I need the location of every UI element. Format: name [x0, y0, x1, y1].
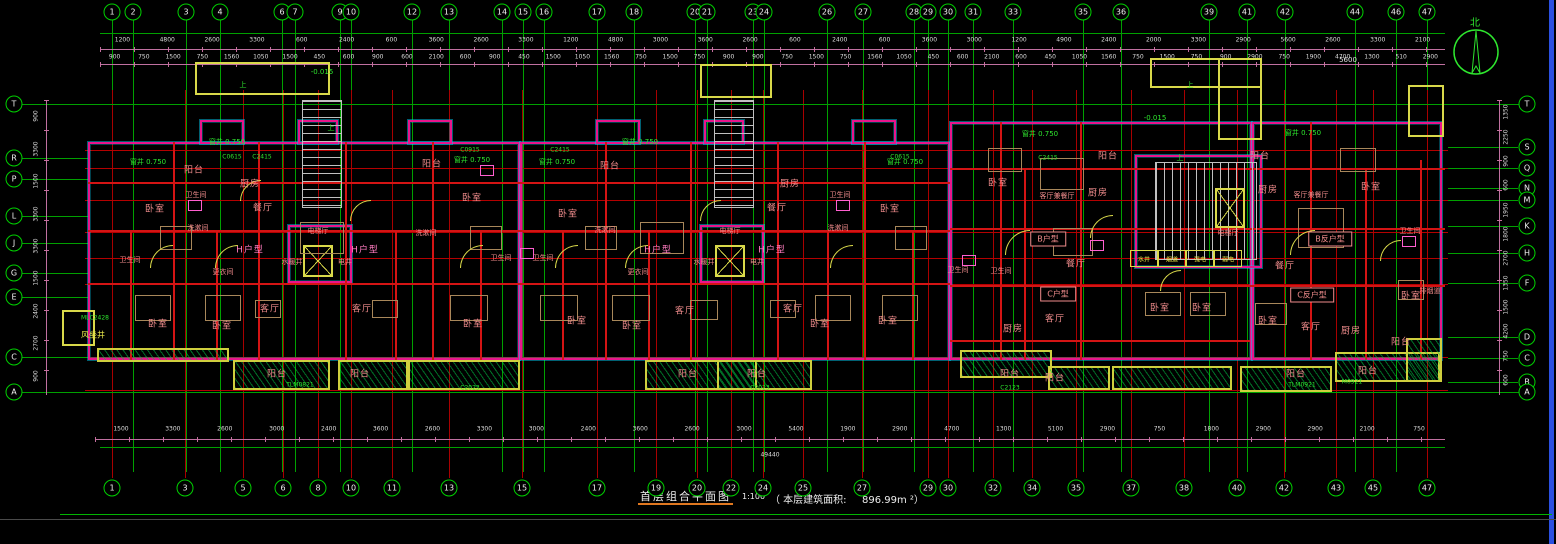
dimension-text: 1050 — [1072, 54, 1087, 61]
room-label: 阳台 — [600, 159, 620, 172]
frame-bottom-line — [60, 514, 1552, 515]
room-label: 阳台 — [1358, 364, 1378, 377]
axis-bubble-bottom: 32 — [985, 480, 1002, 497]
axis-bubble-top: 2 — [125, 4, 142, 21]
furniture — [205, 295, 241, 321]
window-door-tag: C2023 — [460, 385, 479, 392]
furniture — [1340, 148, 1376, 172]
axis-bubble-left: T — [6, 96, 23, 113]
dimension-text: 3600 — [373, 426, 388, 433]
wall-inner — [345, 142, 347, 360]
axis-bubble-bottom: 24 — [755, 480, 772, 497]
dimension-text: 1500 — [113, 426, 128, 433]
dimension-text: 600 — [386, 37, 397, 44]
dimension-text: 750 — [840, 54, 851, 61]
elevator-shaft — [1215, 188, 1245, 228]
room-label: 厨房 — [1088, 186, 1108, 199]
axis-bubble-bottom: 22 — [723, 480, 740, 497]
room-label: 餐厅 — [253, 201, 273, 214]
dimension-text: 600 — [296, 37, 307, 44]
dimension-text: 1050 — [896, 54, 911, 61]
room-label: 卫生间 — [1400, 226, 1421, 236]
dimension-text: 750 — [635, 54, 646, 61]
dimension-ticks — [100, 47, 1445, 52]
wall-inner — [690, 142, 692, 360]
dimension-text: 600 — [1015, 54, 1026, 61]
dimension-text: 1500 — [165, 54, 180, 61]
dimension-text: 2400 — [832, 37, 847, 44]
wall-inner — [605, 142, 607, 360]
room-label: 厨房 — [240, 177, 260, 190]
dimension-text: 2400 — [1101, 37, 1116, 44]
room-label: H户型 — [351, 243, 379, 256]
axis-bubble-top: 17 — [589, 4, 606, 21]
room-label: 电井 — [750, 257, 764, 267]
grid-line-horizontal — [30, 392, 1519, 393]
dimension-text: 900 — [372, 54, 383, 61]
grid-line-horizontal — [30, 104, 1519, 105]
dimension-text: 750 — [781, 54, 792, 61]
dimension-total: 49440 — [760, 452, 779, 459]
shaft-label: 弱电 — [1222, 254, 1234, 263]
wall-inner — [130, 230, 132, 360]
room-label: 卧室 — [148, 317, 168, 330]
axis-bubble-bottom: 11 — [384, 480, 401, 497]
wall-outline — [852, 120, 896, 144]
axis-bubble-left: L — [6, 208, 23, 225]
dimension-text: 600 — [401, 54, 412, 61]
axis-bubble-right: A — [1519, 384, 1536, 401]
room-label: 卧室 — [567, 314, 587, 327]
dimension-text: 1050 — [253, 54, 268, 61]
room-label: 阳台 — [1286, 367, 1306, 380]
room-label: 阳台 — [747, 367, 767, 380]
axis-bubble-bottom: 37 — [1123, 480, 1140, 497]
axis-bubble-left: P — [6, 171, 23, 188]
room-label: 洗漱间 — [828, 223, 849, 233]
balcony — [338, 360, 408, 390]
room-label: 阳台 — [267, 367, 287, 380]
furniture — [372, 300, 398, 318]
dimension-text-left: 3300 — [33, 141, 40, 156]
elevator-shaft — [715, 245, 745, 277]
dimension-text: 1800 — [1204, 426, 1219, 433]
unit-type-label: B户型 — [1030, 232, 1066, 247]
level-annotation: 上 — [1177, 153, 1184, 163]
dimension-text: 1300 — [996, 426, 1011, 433]
level-annotation: 窗井 0.750 — [130, 157, 166, 167]
dimension-text: 3600 — [633, 426, 648, 433]
grid-leader-left — [22, 392, 90, 393]
room-label: 阳台 — [422, 157, 442, 170]
dimension-text: 900 — [109, 54, 120, 61]
bathroom-fixture — [836, 200, 850, 211]
dimension-ticks-right — [1497, 100, 1502, 395]
room-label: 阳台 — [678, 367, 698, 380]
room-label: 阳台 — [350, 367, 370, 380]
room-label: 客厅 — [1045, 312, 1065, 325]
room-label: 卧室 — [1258, 314, 1278, 327]
window-door-tag: C2123 — [1000, 385, 1019, 392]
axis-bubble-top: 29 — [920, 4, 937, 21]
axis-bubble-bottom: 3 — [177, 480, 194, 497]
room-label: 阳台 — [1250, 149, 1270, 162]
window-door-tag: C2415 — [550, 147, 569, 154]
dimension-text-right: 750 — [1503, 350, 1510, 361]
axis-bubble-right: H — [1519, 245, 1536, 262]
dimension-text: 2600 — [425, 426, 440, 433]
dimension-text: 750 — [197, 54, 208, 61]
wall-inner — [950, 285, 1445, 287]
dimension-text: 3300 — [1191, 37, 1206, 44]
room-label: 厨房 — [1341, 324, 1361, 337]
wall-inner — [1024, 168, 1026, 360]
wall-inner — [173, 142, 175, 360]
axis-bubble-top: 44 — [1347, 4, 1364, 21]
dimension-text: 3000 — [736, 426, 751, 433]
level-annotation: 窗井 0.750 — [622, 137, 658, 147]
axis-bubble-bottom: 45 — [1365, 480, 1382, 497]
room-label: 水暖井 — [694, 257, 715, 267]
room-label: 卧室 — [622, 319, 642, 332]
dimension-text: 450 — [314, 54, 325, 61]
dimension-text: 3000 — [653, 37, 668, 44]
bathroom-fixture — [480, 165, 494, 176]
room-label: H户型 — [758, 243, 786, 256]
dimension-text: 2900 — [1236, 37, 1251, 44]
room-label: 卧室 — [1361, 180, 1381, 193]
axis-bubble-left: J — [6, 235, 23, 252]
dimension-text: 1500 — [546, 54, 561, 61]
dimension-text: 2100 — [1415, 37, 1430, 44]
dimension-text: 2900 — [1100, 426, 1115, 433]
axis-bubble-bottom: 15 — [514, 480, 531, 497]
level-annotation: 窗井 0.750 — [1285, 128, 1321, 138]
room-label: 水暖井 — [282, 257, 303, 267]
axis-bubble-bottom: 5 — [235, 480, 252, 497]
room-label: 客厅兼餐厅 — [1040, 191, 1075, 201]
furniture — [612, 295, 650, 321]
room-label: 卫生间 — [491, 253, 512, 263]
dimension-ticks-left — [44, 100, 49, 395]
room-label: 卧室 — [878, 314, 898, 327]
axis-bubble-top: 41 — [1239, 4, 1256, 21]
room-label: 更衣间 — [213, 267, 234, 277]
axis-bubble-bottom: 38 — [1176, 480, 1193, 497]
dimension-text: 3600 — [922, 37, 937, 44]
level-annotation: 窗井 0.750 — [539, 157, 575, 167]
axis-bubble-top: 12 — [404, 4, 421, 21]
dimension-text: 750 — [694, 54, 705, 61]
dimension-text: 3300 — [518, 37, 533, 44]
axis-bubble-top: 30 — [940, 4, 957, 21]
canopy-outline — [1218, 58, 1262, 140]
level-annotation: 上 — [240, 80, 247, 90]
stair — [714, 100, 754, 208]
room-label: 电井 — [338, 257, 352, 267]
room-label: 卧室 — [988, 176, 1008, 189]
room-label: 客厅 — [352, 302, 372, 315]
axis-bubble-right: S — [1519, 139, 1536, 156]
dimension-text: 3300 — [165, 426, 180, 433]
dimension-text: 1900 — [1306, 54, 1321, 61]
room-label: 客厅 — [260, 302, 280, 315]
window-door-tag: C2415 — [1038, 155, 1057, 162]
level-annotation: -0.015 — [311, 68, 334, 76]
dimension-text: 4800 — [608, 37, 623, 44]
dimension-text: 2600 — [204, 37, 219, 44]
axis-bubble-top: 21 — [699, 4, 716, 21]
axis-bubble-top: 27 — [855, 4, 872, 21]
axis-bubble-bottom: 8 — [310, 480, 327, 497]
shaft-label: 水井 — [1138, 254, 1150, 263]
axis-bubble-right: F — [1519, 275, 1536, 292]
dimension-text: 1900 — [840, 426, 855, 433]
axis-bubble-left: A — [6, 384, 23, 401]
unit-type-label: C反户型 — [1290, 288, 1334, 303]
wall-outline — [408, 120, 452, 144]
unit-type-label: B反户型 — [1308, 232, 1352, 247]
room-label: 卧室 — [1401, 289, 1421, 302]
axis-bubble-top: 15 — [515, 4, 532, 21]
dimension-text: 2900 — [1308, 426, 1323, 433]
dimension-text: 900 — [723, 54, 734, 61]
room-label: 更衣间 — [628, 267, 649, 277]
room-label: 卫生间 — [533, 253, 554, 263]
dimension-text: 3000 — [269, 426, 284, 433]
wall-inner — [432, 142, 434, 360]
dimension-text: 1200 — [115, 37, 130, 44]
room-label: 卧室 — [558, 207, 578, 220]
dimension-text: 1500 — [809, 54, 824, 61]
axis-bubble-right: Q — [1519, 160, 1536, 177]
room-label: 卧室 — [462, 191, 482, 204]
dimension-text-left: 3300 — [33, 206, 40, 221]
dimension-text: 2400 — [321, 426, 336, 433]
room-label: 阳台 — [1045, 371, 1065, 384]
room-label: 电梯厅 — [308, 226, 329, 236]
axis-bubble-bottom: 20 — [689, 480, 706, 497]
dimension-text-right: 1800 — [1503, 226, 1510, 241]
area-value: 896.99m ²） — [862, 491, 924, 506]
axis-bubble-top: 10 — [343, 4, 360, 21]
dimension-text-right: 1500 — [1503, 299, 1510, 314]
window-door-tag: C2415 — [252, 154, 271, 161]
room-label: 卧室 — [212, 319, 232, 332]
dimension-text-right: 900 — [1503, 155, 1510, 166]
room-label: 洗漱间 — [595, 225, 616, 235]
furniture — [988, 148, 1022, 172]
dimension-text: 1050 — [575, 54, 590, 61]
axis-bubble-top: 39 — [1201, 4, 1218, 21]
axis-bubble-top: 18 — [626, 4, 643, 21]
room-label: 电梯厅 — [1218, 228, 1239, 238]
dimension-text-left: 2700 — [33, 336, 40, 351]
dimension-text: 2100 — [984, 54, 999, 61]
balcony — [97, 348, 229, 362]
axis-bubble-bottom: 27 — [854, 480, 871, 497]
dimension-text: 1560 — [604, 54, 619, 61]
window-door-tag: MLC2428 — [81, 315, 109, 322]
level-annotation: 窗井 0.750 — [209, 137, 245, 147]
annotation: 5600 — [1339, 56, 1357, 64]
axis-bubble-top: 7 — [287, 4, 304, 21]
grid-leader-left — [22, 158, 90, 159]
dimension-text: 3600 — [429, 37, 444, 44]
grid-leader-left — [22, 104, 90, 105]
room-label: 排烟道 — [1420, 286, 1441, 296]
room-label: 客厅 — [783, 302, 803, 315]
dimension-text: 1560 — [867, 54, 882, 61]
dimension-text: 600 — [879, 37, 890, 44]
room-label: 客厅兼餐厅 — [1294, 190, 1329, 200]
room-label: 电梯厅 — [720, 226, 741, 236]
dimension-text: 1560 — [1101, 54, 1116, 61]
dimension-text: 750 — [1132, 54, 1143, 61]
axis-bubble-bottom: 35 — [1068, 480, 1085, 497]
dimension-text: 3300 — [249, 37, 264, 44]
dimension-text: 2600 — [473, 37, 488, 44]
dimension-text: 2400 — [581, 426, 596, 433]
room-label: 卫生间 — [830, 190, 851, 200]
dimension-text-right: 1350 — [1503, 105, 1510, 120]
axis-bubble-bottom: 40 — [1229, 480, 1246, 497]
dimension-text: 1200 — [1011, 37, 1026, 44]
dimension-text: 600 — [460, 54, 471, 61]
dimension-text: 450 — [928, 54, 939, 61]
dimension-text: 1200 — [563, 37, 578, 44]
dimension-text: 2400 — [339, 37, 354, 44]
wall-inner — [1420, 160, 1422, 360]
dimension-text: 600 — [343, 54, 354, 61]
room-label: 卧室 — [1150, 301, 1170, 314]
axis-bubble-top: 13 — [441, 4, 458, 21]
dimension-text-left: 2400 — [33, 303, 40, 318]
room-label: 洗漱间 — [416, 228, 437, 238]
dimension-text: 3000 — [529, 426, 544, 433]
dimension-text: 2900 — [892, 426, 907, 433]
grid-leader-right — [1448, 168, 1518, 169]
room-label: 餐厅 — [767, 201, 787, 214]
axis-bubble-bottom: 47 — [1419, 480, 1436, 497]
room-label: 厨房 — [1003, 322, 1023, 335]
axis-bubble-right: K — [1519, 218, 1536, 235]
dimension-text-right: 4200 — [1503, 324, 1510, 339]
room-label: 卫生间 — [186, 190, 207, 200]
dimension-text: 2000 — [1146, 37, 1161, 44]
axis-bubble-bottom: 34 — [1024, 480, 1041, 497]
dimension-text: 2600 — [217, 426, 232, 433]
dimension-text: 900 — [489, 54, 500, 61]
balcony — [1112, 366, 1232, 390]
window-door-tag: C0915 — [460, 147, 479, 154]
window-door-tag: TLM0821 — [286, 382, 313, 389]
dimension-text: 1500 — [282, 54, 297, 61]
axis-bubble-right: M — [1519, 192, 1536, 209]
room-label: H户型 — [236, 243, 264, 256]
axis-bubble-top: 46 — [1388, 4, 1405, 21]
axis-bubble-top: 47 — [1419, 4, 1436, 21]
balcony — [1406, 338, 1442, 382]
room-label: 阳台 — [1391, 335, 1411, 348]
room-label: 卫生间 — [948, 265, 969, 275]
window-right-edge — [1549, 0, 1554, 544]
dimension-text: 2900 — [1423, 54, 1438, 61]
grid-leader-right — [1448, 147, 1518, 148]
level-annotation: 窗井 0.750 — [1022, 129, 1058, 139]
dimension-text: 4800 — [160, 37, 175, 44]
dimension-text-right: 2700 — [1503, 251, 1510, 266]
window-door-tag: TLM0921 — [1288, 382, 1315, 389]
shaft-label: 烟道 — [1166, 254, 1178, 263]
window-door-tag: C0615 — [890, 154, 909, 161]
axis-bubble-bottom: 1 — [104, 480, 121, 497]
dimension-text-left: 1500 — [33, 271, 40, 286]
canopy-outline — [195, 62, 330, 95]
axis-bubble-right: D — [1519, 329, 1536, 346]
wall-inner — [88, 182, 950, 184]
furniture — [1040, 158, 1084, 190]
axis-bubble-top: 42 — [1277, 4, 1294, 21]
axis-bubble-bottom: 6 — [275, 480, 292, 497]
dimension-text: 3600 — [698, 37, 713, 44]
window-door-tag: M0921 — [1342, 379, 1362, 386]
dimension-text: 3300 — [477, 426, 492, 433]
window-door-tag: C2023 — [750, 385, 769, 392]
room-label: 卧室 — [463, 317, 483, 330]
dimension-text-right: 600 — [1503, 179, 1510, 190]
axis-bubble-top: 36 — [1113, 4, 1130, 21]
dimension-text-right: 600 — [1503, 374, 1510, 385]
axis-bubble-top: 3 — [178, 4, 195, 21]
axis-bubble-top: 35 — [1075, 4, 1092, 21]
dimension-text-right: 1950 — [1503, 202, 1510, 217]
window-door-tag: C0615 — [222, 154, 241, 161]
dimension-text: 750 — [1278, 54, 1289, 61]
canopy-outline — [700, 64, 772, 98]
unit-type-label: C户型 — [1040, 287, 1076, 302]
wall-inner — [950, 340, 1250, 342]
room-label: 厨房 — [780, 177, 800, 190]
room-label: 阳台 — [1098, 149, 1118, 162]
wall-inner — [88, 230, 950, 232]
axis-bubble-top: 4 — [212, 4, 229, 21]
dimension-text: 2900 — [1256, 426, 1271, 433]
title-underline — [638, 503, 733, 505]
dimension-text-left: 900 — [33, 110, 40, 121]
room-label: 卫生间 — [991, 266, 1012, 276]
room-label: 阳台 — [1000, 367, 1020, 380]
dimension-text-left: 3300 — [33, 238, 40, 253]
bathroom-fixture — [188, 200, 202, 211]
north-arrow-icon — [1448, 24, 1504, 80]
dimension-text-left: 1500 — [33, 173, 40, 188]
dimension-text: 750 — [138, 54, 149, 61]
shaft-label: 强电 — [1194, 254, 1206, 263]
axis-bubble-bottom: 30 — [940, 480, 957, 497]
dimension-ticks — [95, 437, 1445, 442]
window-bottom-edge — [0, 519, 1556, 520]
canopy-outline — [1408, 85, 1444, 137]
dimension-text: 450 — [518, 54, 529, 61]
cad-drawing-canvas[interactable]: 首层组合平面图 1:100 （ 本层建筑面积: 896.99m ²） 北 120… — [0, 0, 1556, 544]
bathroom-fixture — [1402, 236, 1416, 247]
axis-bubble-top: 16 — [536, 4, 553, 21]
room-label: 卧室 — [810, 317, 830, 330]
axis-bubble-left: R — [6, 150, 23, 167]
axis-bubble-left: G — [6, 265, 23, 282]
axis-bubble-bottom: 29 — [920, 480, 937, 497]
